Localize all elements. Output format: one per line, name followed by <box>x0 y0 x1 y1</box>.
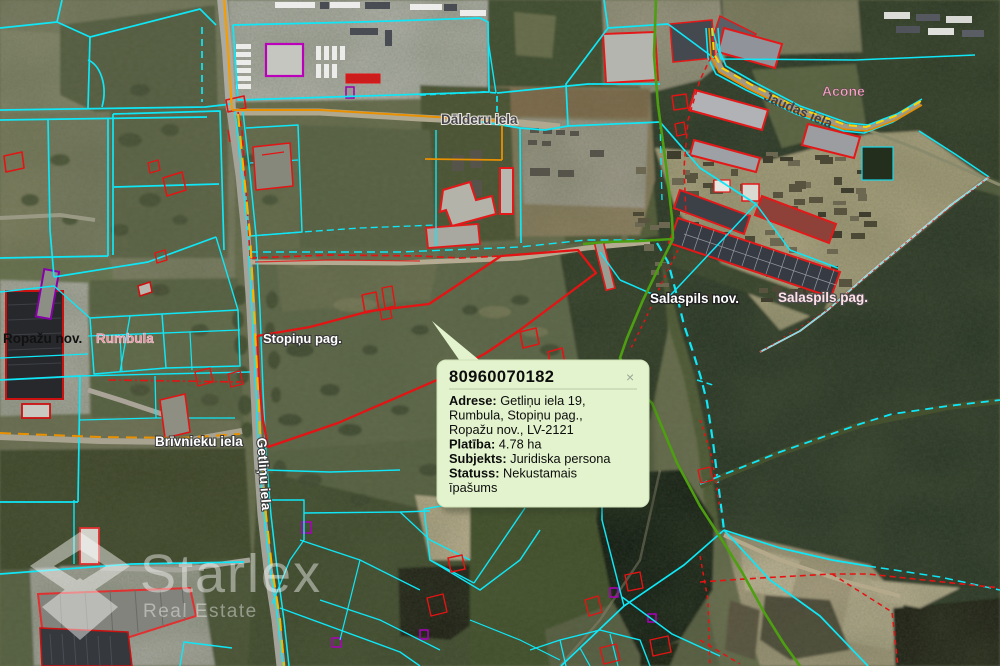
svg-text:Salaspils pag.: Salaspils pag. <box>778 290 868 305</box>
svg-text:īpašums: īpašums <box>449 480 497 495</box>
svg-text:Salaspils nov.: Salaspils nov. <box>650 291 739 306</box>
svg-text:Adrese: Getliņu iela 19,: Adrese: Getliņu iela 19, <box>449 393 586 408</box>
svg-text:Real Estate: Real Estate <box>143 601 258 622</box>
svg-text:Brīvnieku iela: Brīvnieku iela <box>155 434 243 449</box>
svg-text:Statuss: Nekustamais: Statuss: Nekustamais <box>449 466 577 481</box>
svg-text:Acone: Acone <box>822 83 865 99</box>
svg-text:Ropažu nov.: Ropažu nov. <box>3 331 82 346</box>
svg-text:Platība: 4.78 ha: Platība: 4.78 ha <box>449 437 542 452</box>
svg-text:Rumbula, Stopiņu pag.,: Rumbula, Stopiņu pag., <box>449 408 583 423</box>
svg-text:Starlex: Starlex <box>140 544 322 604</box>
svg-text:Subjekts: Juridiska persona: Subjekts: Juridiska persona <box>449 451 611 466</box>
svg-text:Rumbula: Rumbula <box>96 331 154 346</box>
svg-text:80960070182: 80960070182 <box>449 368 554 386</box>
svg-text:Dālderu iela: Dālderu iela <box>441 112 518 127</box>
svg-text:×: × <box>626 369 634 385</box>
svg-text:Stopiņu pag.: Stopiņu pag. <box>263 331 342 346</box>
svg-text:Ropažu nov., LV-2121: Ropažu nov., LV-2121 <box>449 422 574 437</box>
